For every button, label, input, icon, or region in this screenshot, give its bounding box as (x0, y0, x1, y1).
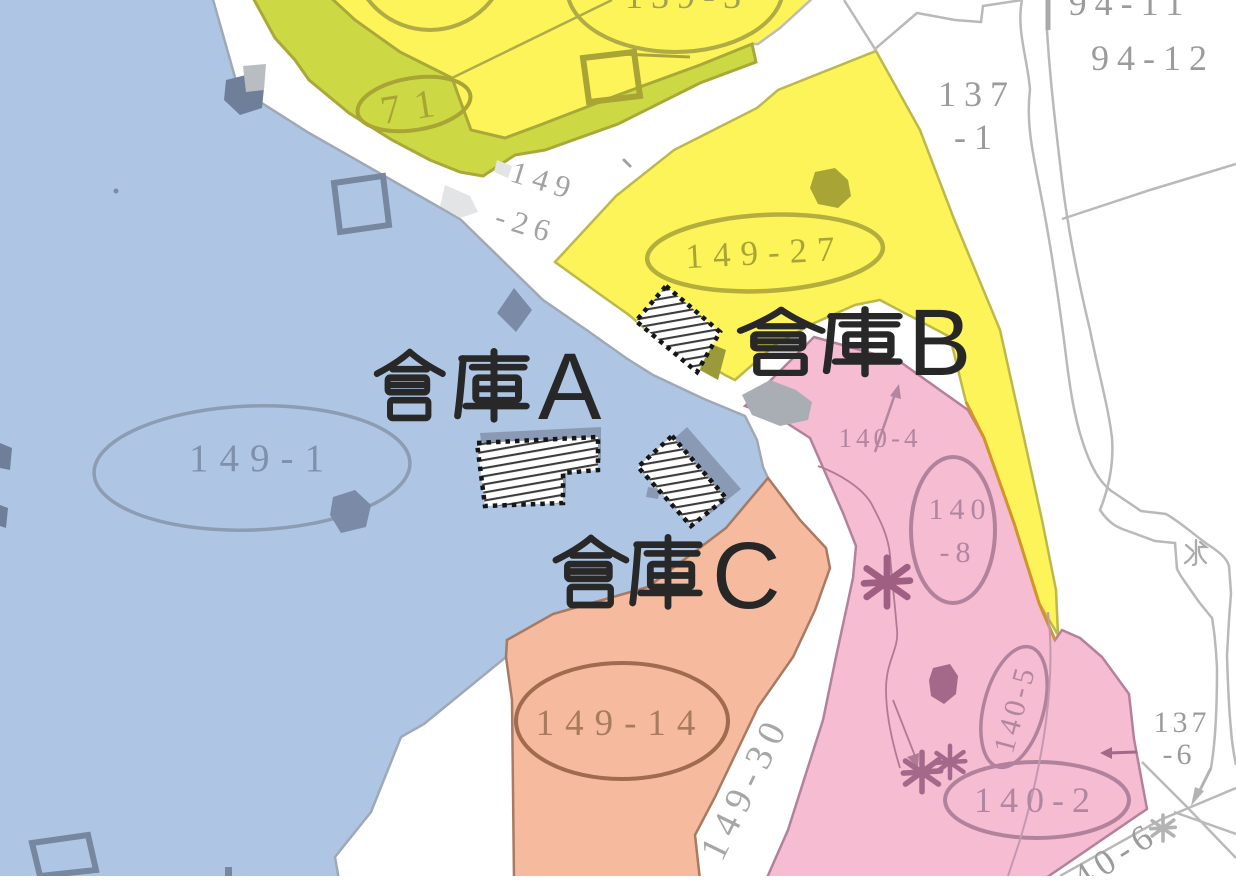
svg-text:-6: -6 (1163, 738, 1196, 771)
svg-text:140-2: 140-2 (974, 780, 1098, 820)
svg-text:139-3: 139-3 (625, 0, 749, 16)
svg-text:149-14: 149-14 (536, 703, 707, 744)
svg-text:B: B (908, 290, 971, 396)
svg-text:140-4: 140-4 (839, 423, 922, 453)
svg-text:137: 137 (938, 74, 1016, 114)
svg-text:149-1: 149-1 (189, 437, 335, 480)
svg-text:149-27: 149-27 (685, 229, 846, 276)
svg-text:137: 137 (1154, 706, 1211, 739)
svg-text:94-11: 94-11 (1069, 0, 1192, 23)
svg-text:140: 140 (929, 493, 992, 526)
svg-text:A: A (538, 334, 602, 440)
svg-text:-8: -8 (940, 536, 977, 569)
svg-text:-1: -1 (954, 117, 1000, 157)
svg-text:C: C (712, 523, 781, 629)
svg-text:94-12: 94-12 (1091, 38, 1215, 78)
